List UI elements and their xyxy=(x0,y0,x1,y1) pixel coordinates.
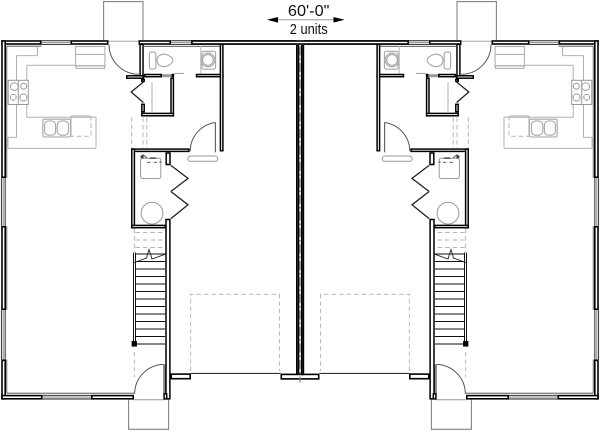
svg-text:2 units: 2 units xyxy=(290,22,328,38)
svg-text:60'-0": 60'-0" xyxy=(288,3,330,20)
